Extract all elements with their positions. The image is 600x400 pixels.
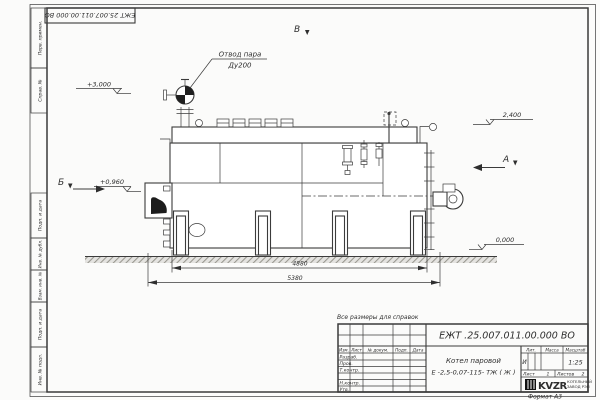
row-label-razrab: Разраб. [340, 355, 358, 361]
boiler-top-strip [172, 127, 417, 143]
elevation-value: +3,000 [87, 81, 111, 89]
view-arrow-b: Б [58, 178, 105, 193]
scale-header: Масштаб [566, 348, 586, 353]
small-valve-left-icon [196, 120, 203, 127]
format-note: Формат А3 [528, 394, 562, 400]
boiler-body [170, 143, 427, 248]
elevation-mark-0000: 0,000 [469, 236, 524, 250]
mass-header: Масса [545, 348, 559, 353]
product-name-line1: Котел паровой [446, 357, 501, 365]
sheets-number: 2 [582, 372, 585, 378]
col-header-doc: № докум. [367, 348, 389, 353]
margin-label-sprav-no: Справ. № [38, 79, 44, 102]
sheet-label: Лист [522, 372, 535, 378]
scale-value: 1:25 [568, 359, 583, 367]
lit-value: И [522, 359, 527, 366]
row-label-utv: Утв. [340, 387, 350, 393]
margin-label-perv-primen: Перв. примен. [38, 21, 44, 56]
row-label-nkontr: Н.контр. [340, 381, 361, 387]
manhole [189, 224, 205, 237]
margin-label-inv-podl: Инв. № подл. [38, 354, 44, 386]
margin-stamp-column: Перв. примен. Справ. № Подп. и дата Инв.… [31, 8, 47, 392]
boiler-drawing [85, 80, 497, 264]
sheet-number: 1 [547, 372, 550, 378]
callout-text-line1: Отвод пара [219, 51, 262, 59]
right-top-pipe [420, 123, 437, 143]
margin-label-vzam-inv: Взам. инв. № [38, 271, 43, 300]
boiler-general-view-drawing: Перв. примен. Справ. № Подп. и дата Инв.… [0, 0, 600, 400]
elevation-value: 2,400 [503, 111, 522, 119]
steam-outlet-valve [164, 80, 195, 128]
title-block: Изм. Лист № докум. Подп. Дата Разраб. Пр… [338, 324, 592, 393]
burner-assembly [433, 184, 463, 209]
kvzr-logo: KVZR КОТЕЛЬНЫЙ ЗАВОД РЭП [525, 379, 592, 392]
product-name-line2: Е -2,5-0,07-115- ТЖ ( Ж ) [431, 369, 515, 377]
col-header-list: Лист [350, 348, 362, 353]
col-header-sign: Подп. [395, 348, 408, 353]
top-hatches [196, 119, 409, 127]
view-letter: А [502, 155, 509, 165]
col-header-date: Дата [412, 348, 424, 353]
sight-glass-box [145, 139, 172, 218]
ground-hatch [85, 257, 497, 264]
title-doc-number: ЕЖТ .25.007.011.00.000 ВО [439, 331, 575, 342]
elevation-mark-2400: 2,400 [473, 111, 533, 125]
lit-header: Лит. [525, 348, 536, 353]
drawing-sheet: Перв. примен. Справ. № Подп. и дата Инв.… [0, 0, 600, 400]
margin-label-podp-data-2: Подп. и дата [38, 309, 44, 340]
dimension-value: 5380 [287, 275, 302, 282]
col-header-izm: Изм. [339, 348, 349, 353]
view-arrow-a: А [473, 155, 518, 171]
view-letter: Б [58, 178, 64, 188]
margin-label-podp-data-1: Подп. и дата [38, 200, 44, 231]
row-label-tkontr: Т.контр. [340, 368, 360, 374]
view-arrow-v: В [294, 25, 310, 35]
kvzr-logo-sub2: ЗАВОД РЭП [567, 384, 590, 389]
elevation-mark-3000: +3,000 [76, 81, 131, 94]
dimension-value: 4880 [292, 261, 307, 268]
view-letter: В [294, 25, 300, 35]
steam-outlet-callout: Отвод пара Ду200 [190, 51, 267, 89]
top-stamp: ЕЖТ 25.007.011.00.000 ВО [45, 8, 136, 23]
callout-text-line2: Ду200 [228, 62, 253, 70]
kvzr-logo-text: KVZR [538, 381, 568, 392]
elevation-value: +0,960 [100, 178, 124, 186]
margin-label-inv-dubl: Инв. № дубл. [38, 240, 43, 269]
sheets-label: Листов [556, 372, 574, 378]
row-label-prov: Пров. [340, 361, 353, 367]
small-valve-right-icon [402, 120, 409, 127]
reference-note: Все размеры для справок [337, 314, 419, 321]
top-stamp-number: ЕЖТ 25.007.011.00.000 ВО [45, 11, 136, 19]
elevation-value: 0,000 [496, 236, 515, 244]
